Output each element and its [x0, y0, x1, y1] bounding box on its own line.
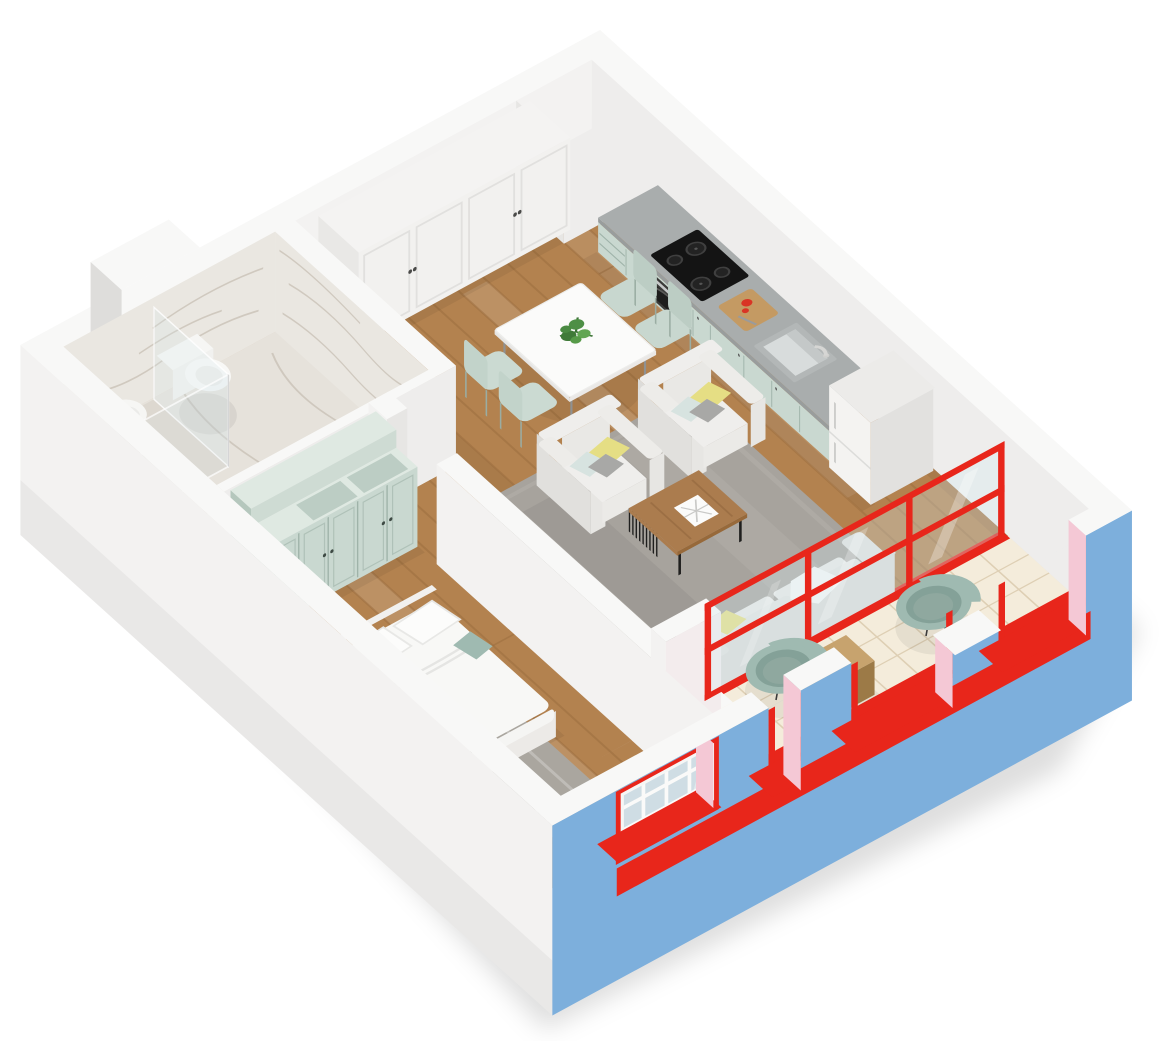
- apartment-3d-floorplan: [0, 0, 1170, 1041]
- glazing-post: [805, 547, 811, 647]
- glazing-post: [906, 492, 912, 592]
- pier-pink-reveal: [783, 675, 800, 791]
- glazing-post: [998, 442, 1004, 542]
- pier-pink-reveal: [1069, 520, 1086, 636]
- floorplan-stage: [0, 0, 1170, 1041]
- glazing-post: [705, 602, 711, 702]
